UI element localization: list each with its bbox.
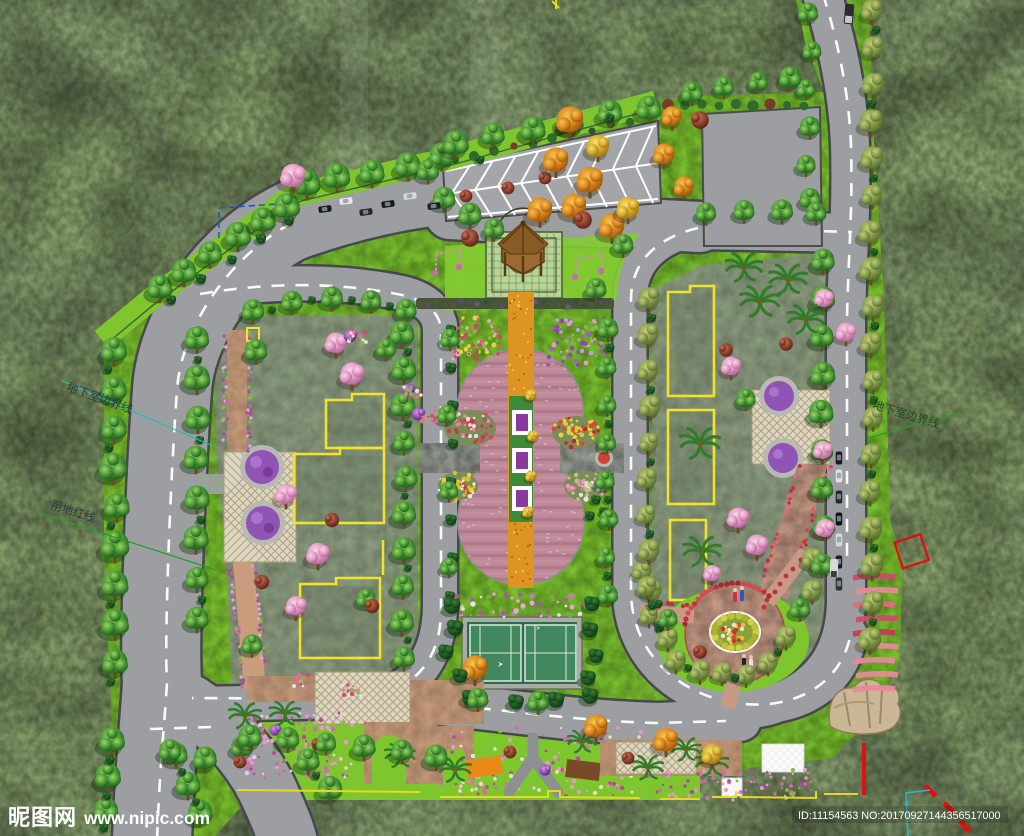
svg-text:www.nipic.com: www.nipic.com: [83, 808, 210, 828]
svg-text:ID:11154563 NO:201709271443565: ID:11154563 NO:20170927144356517000: [798, 810, 1001, 822]
svg-text:昵图网: 昵图网: [8, 805, 77, 830]
